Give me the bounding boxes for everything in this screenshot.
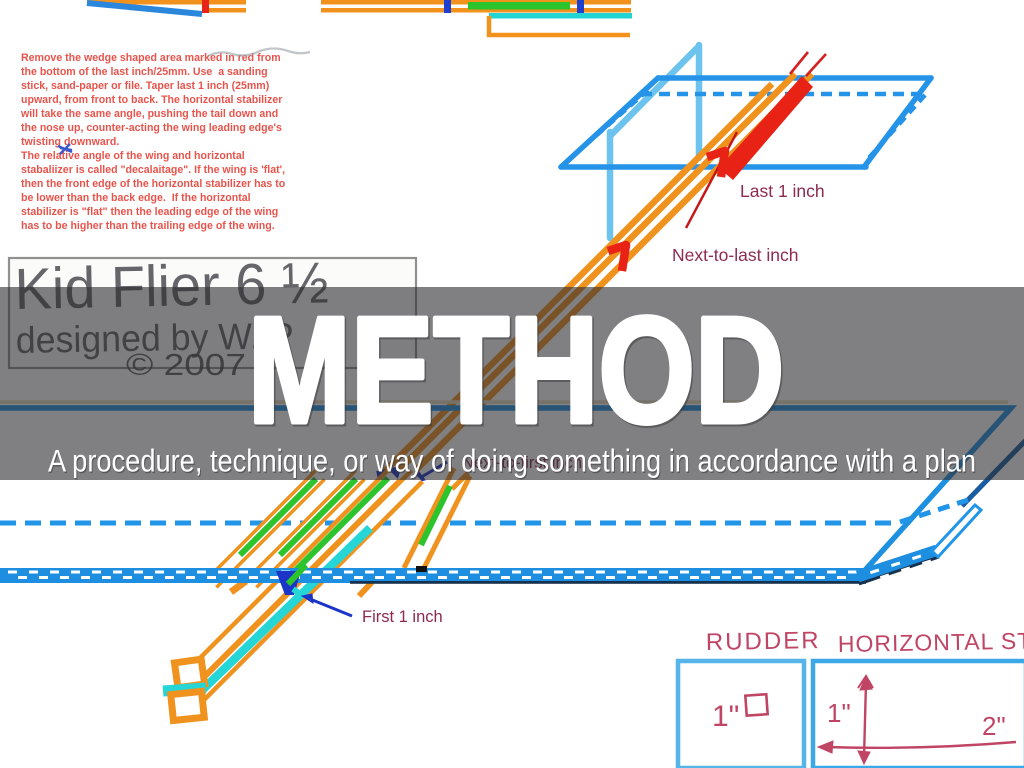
svg-text:stabaliizer is called "decalai: stabaliizer is called "decalaitage". If … <box>21 164 285 176</box>
svg-text:upward, from front to back. Th: upward, from front to back. The horizont… <box>21 94 282 106</box>
svg-text:A procedure, technique, or way: A procedure, technique, or way of doing … <box>48 444 976 479</box>
svg-text:twisting downward.: twisting downward. <box>21 136 119 148</box>
svg-text:stabilizer is "flat" then the: stabilizer is "flat" then the leading ed… <box>21 206 278 218</box>
svg-text:Remove the wedge shaped area m: Remove the wedge shaped area marked in r… <box>21 52 281 64</box>
svg-text:has to be higher than the trai: has to be higher than the trailing edge … <box>21 220 275 232</box>
svg-text:RUDDER: RUDDER <box>706 627 821 656</box>
svg-text:the nose up, counter-acting th: the nose up, counter-acting the wing lea… <box>21 122 282 134</box>
svg-text:stick, sand-paper or file. Tap: stick, sand-paper or file. Taper last 1 … <box>21 80 269 92</box>
svg-text:Last 1 inch: Last 1 inch <box>740 181 825 201</box>
svg-text:2": 2" <box>982 711 1006 741</box>
svg-text:the bottom of the last inch/25: the bottom of the last inch/25mm. Use a … <box>21 66 268 78</box>
svg-text:be lower than the back edge.: be lower than the back edge. If the hori… <box>21 192 251 204</box>
svg-text:Next-to-last inch: Next-to-last inch <box>672 245 798 265</box>
svg-text:1": 1" <box>827 698 851 728</box>
svg-text:will take the same angle, push: will take the same angle, pushing the ta… <box>20 108 278 120</box>
svg-text:1": 1" <box>712 700 739 733</box>
svg-text:METHOD: METHOD <box>248 286 785 454</box>
svg-text:then the front edge of the hor: then the front edge of the horizontal st… <box>21 178 286 190</box>
svg-text:HORIZONTAL STAB: HORIZONTAL STAB <box>838 627 1024 657</box>
svg-text:The relative angle of the wing: The relative angle of the wing and horiz… <box>21 150 245 162</box>
svg-text:First 1 inch: First 1 inch <box>362 608 443 626</box>
